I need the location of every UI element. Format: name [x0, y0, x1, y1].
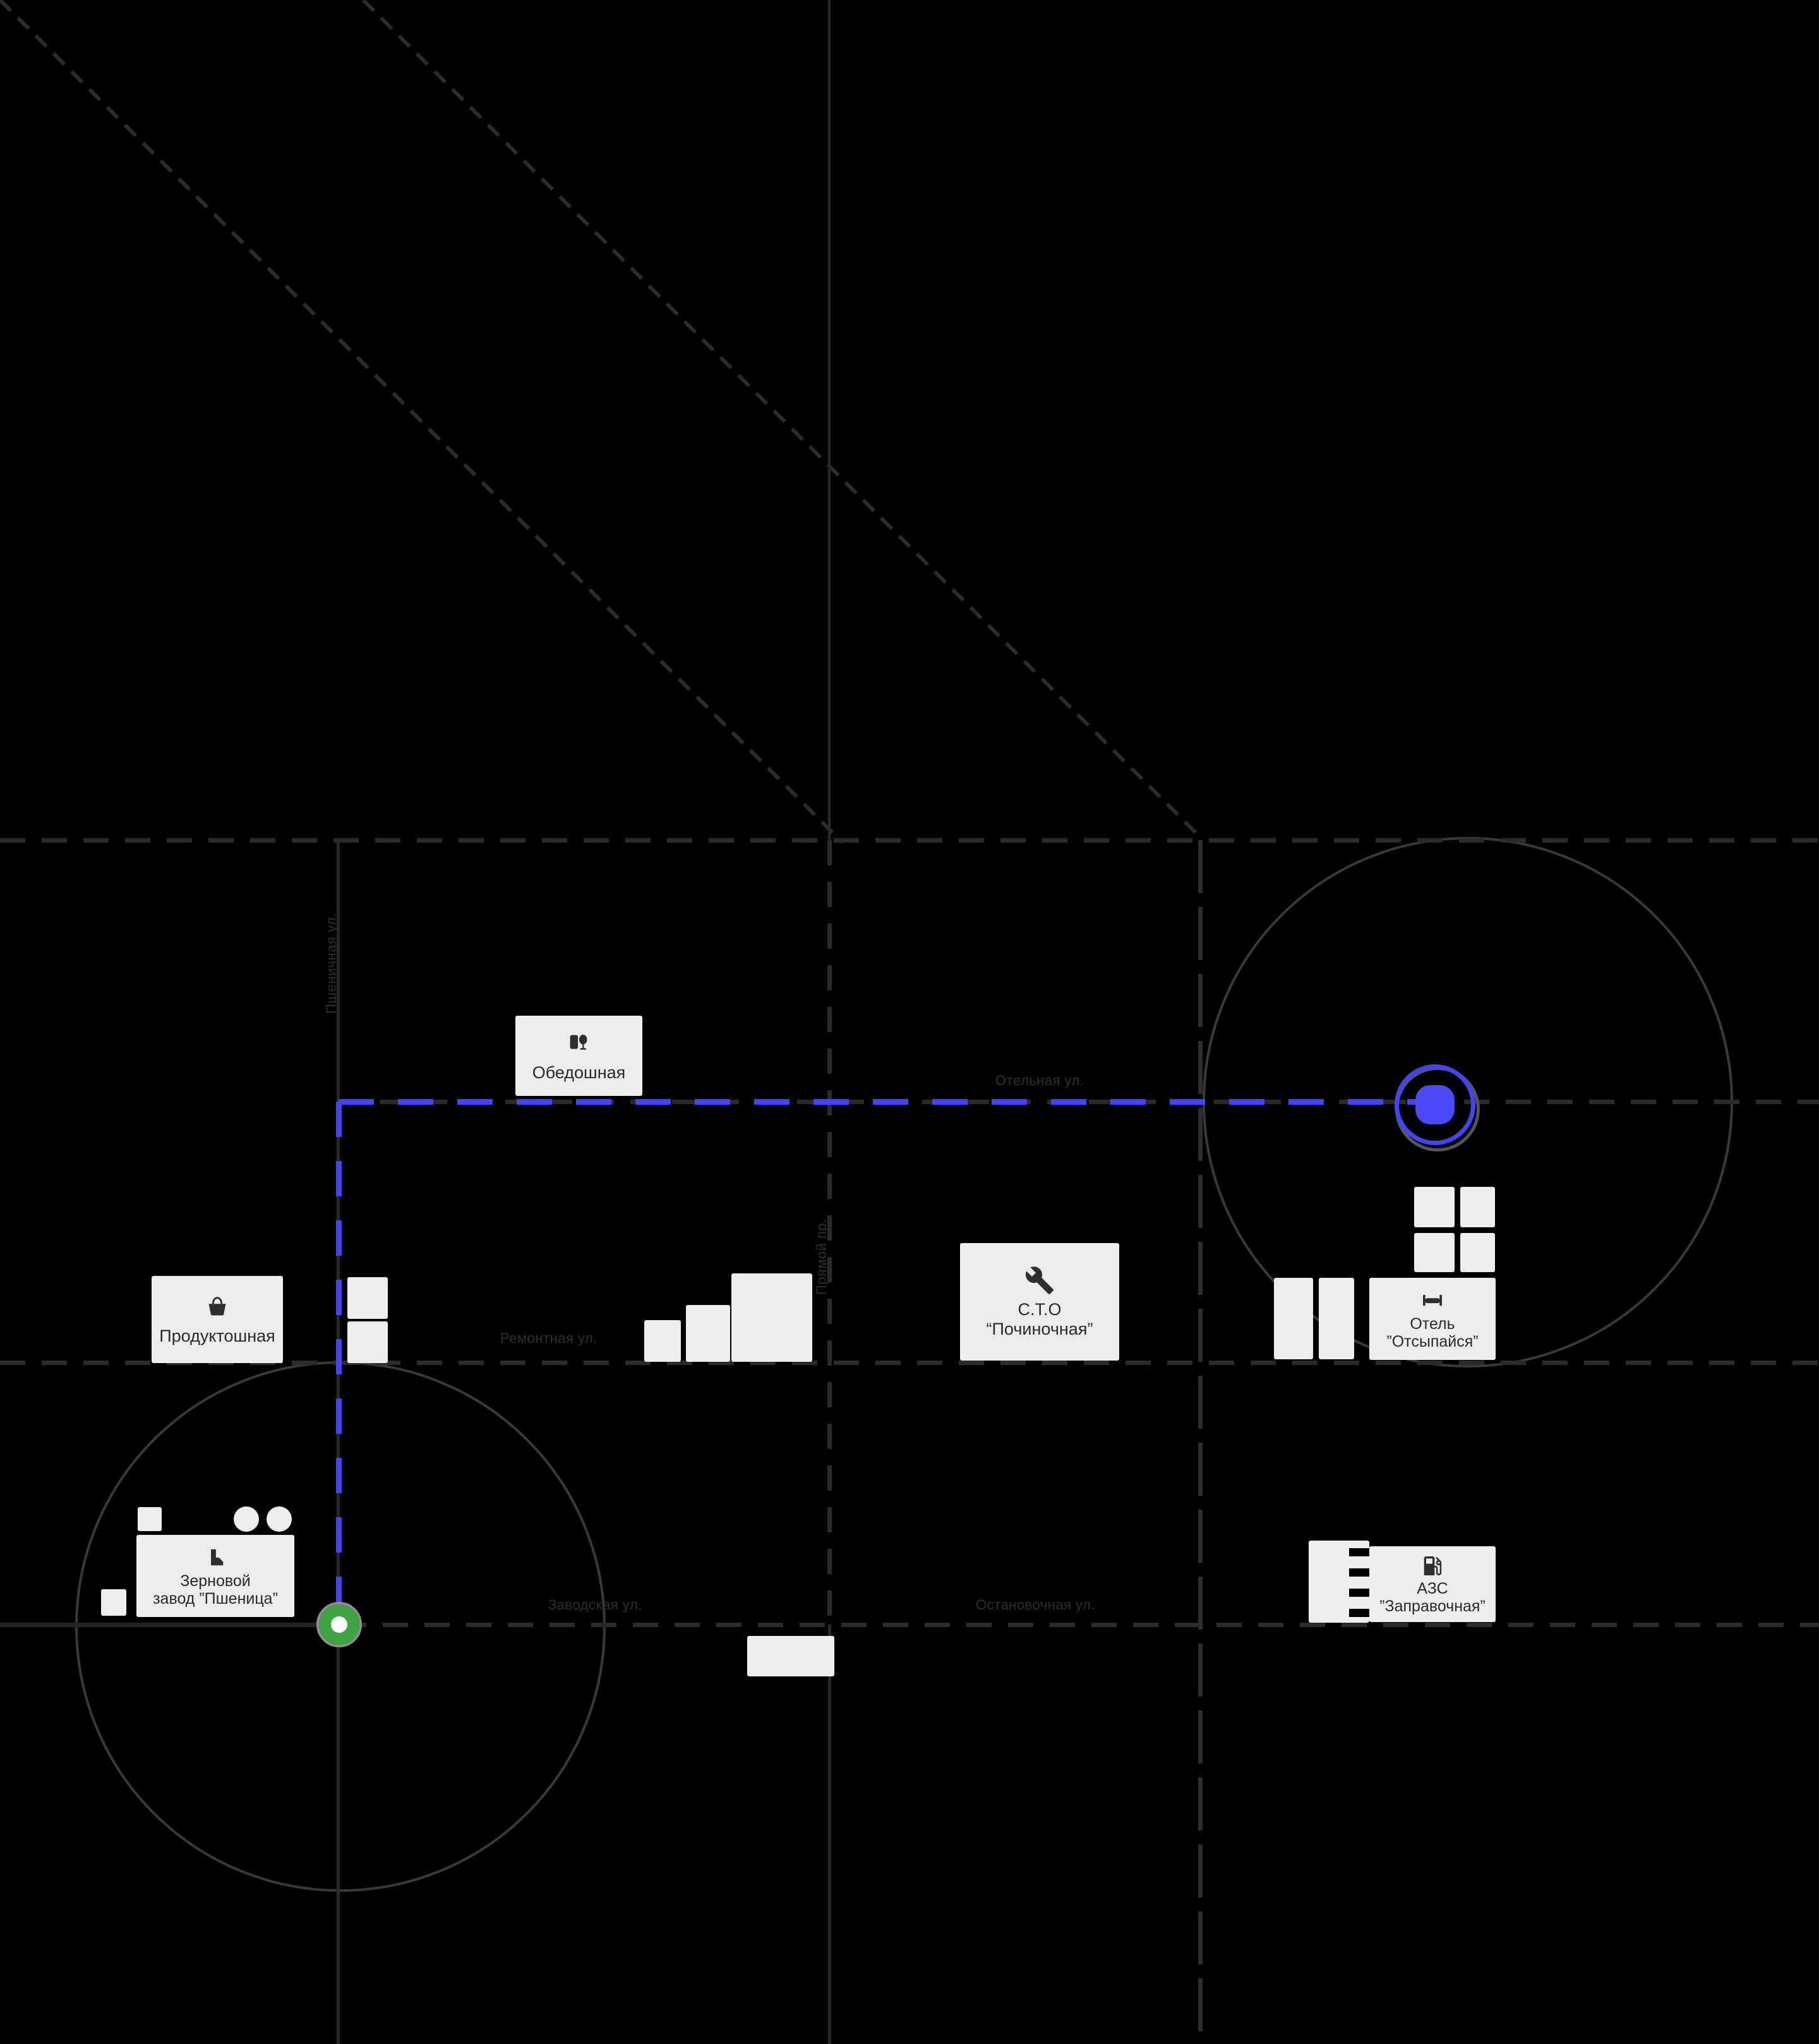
- street-label-repair: Ремонтная ул.: [500, 1330, 597, 1347]
- street-label-factory: Заводская ул.: [548, 1597, 642, 1613]
- factory-silo: [234, 1506, 259, 1532]
- road-top-horizontal: [0, 838, 1819, 843]
- pump-bay: [1349, 1568, 1369, 1577]
- restaurant-icon: [565, 1030, 594, 1059]
- pump-bay: [1349, 1548, 1369, 1556]
- fuel-pump-icon: [1420, 1553, 1445, 1578]
- poi-card-sto[interactable]: С.Т.О “Починочная”: [960, 1243, 1119, 1361]
- factory-icon: [202, 1544, 229, 1571]
- destination-dot-icon: [1415, 1085, 1455, 1124]
- building: [1460, 1187, 1495, 1227]
- building: [347, 1321, 388, 1363]
- poi-label-line2: “Починочная”: [987, 1320, 1093, 1338]
- pump-bay: [1349, 1609, 1369, 1617]
- basket-icon: [203, 1293, 232, 1322]
- road-bottom-horizontal-east: [341, 1623, 1819, 1627]
- pump-bay: [1349, 1589, 1369, 1597]
- street-label-stop: Остановочная ул.: [976, 1597, 1095, 1613]
- factory-shed: [138, 1507, 162, 1531]
- poi-card-factory[interactable]: Зерновой завод ”Пшеница”: [136, 1535, 294, 1617]
- poi-label-line2: ”Отсыпайся”: [1386, 1333, 1478, 1350]
- factory-silo: [267, 1506, 292, 1532]
- road-diagonal-west: [0, 0, 844, 844]
- poi-label-line1: С.Т.О: [1018, 1300, 1061, 1319]
- poi-label: Продуктошная: [159, 1326, 275, 1345]
- poi-label-line1: Отель: [1410, 1315, 1455, 1333]
- building: [347, 1277, 388, 1319]
- building: [1414, 1187, 1455, 1227]
- poi-label: Обедошная: [532, 1063, 626, 1082]
- road-bottom-horizontal-west: [0, 1623, 341, 1627]
- road-east-vertical: [1198, 840, 1203, 2044]
- poi-card-produktoshnaya[interactable]: Продуктошная: [152, 1276, 283, 1363]
- building: [747, 1636, 834, 1676]
- route-line-vertical: [336, 1102, 342, 1627]
- poi-card-obedoshnaya[interactable]: Обедошная: [515, 1016, 642, 1096]
- building: [731, 1273, 812, 1362]
- building: [1274, 1278, 1313, 1359]
- poi-label-line2: ”Заправочная”: [1379, 1597, 1486, 1615]
- road-center-vertical-top: [828, 0, 831, 840]
- route-map: Отельная ул. Ремонтная ул. Заводская ул.…: [0, 0, 1819, 2044]
- poi-label-line1: Зерновой: [180, 1572, 251, 1590]
- road-diagonal-east: [362, 0, 1204, 841]
- gas-station-canopy: [1309, 1541, 1369, 1623]
- building: [1414, 1233, 1455, 1272]
- building: [1460, 1233, 1495, 1272]
- street-label-wheat: Пшеничная ул.: [323, 894, 340, 1014]
- bed-icon: [1419, 1288, 1446, 1313]
- building: [686, 1305, 730, 1362]
- street-label-central: Прямой пр.: [813, 1200, 830, 1295]
- factory-shed: [101, 1589, 126, 1616]
- poi-label-line2: завод ”Пшеница”: [153, 1590, 278, 1608]
- street-label-hotel: Отельная ул.: [995, 1073, 1084, 1089]
- wrench-icon: [1024, 1265, 1055, 1296]
- poi-card-hotel[interactable]: Отель ”Отсыпайся”: [1369, 1278, 1496, 1360]
- route-line-horizontal: [339, 1099, 1435, 1105]
- building: [644, 1320, 681, 1362]
- road-center-vertical-bottom: [828, 1625, 831, 2044]
- building: [1319, 1278, 1354, 1359]
- poi-card-azs[interactable]: АЗС ”Заправочная”: [1369, 1546, 1496, 1622]
- poi-label-line1: АЗС: [1417, 1580, 1448, 1597]
- start-dot-center-icon: [331, 1616, 347, 1633]
